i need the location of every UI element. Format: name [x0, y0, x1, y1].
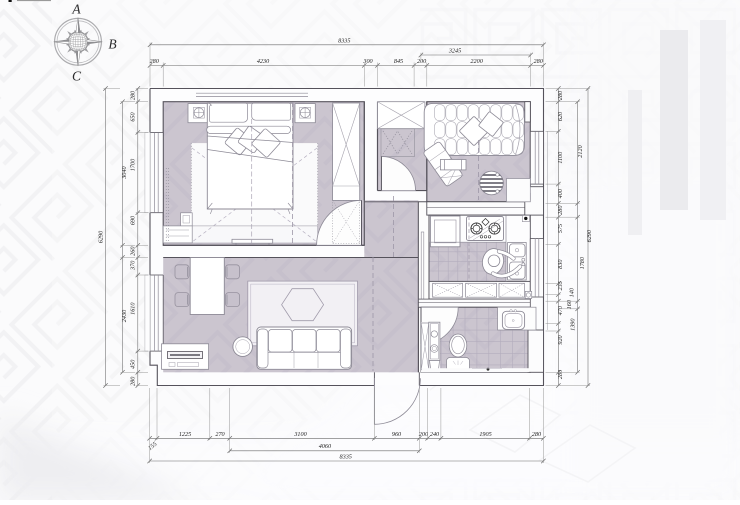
- svg-text:280: 280: [130, 376, 137, 386]
- svg-text:845: 845: [394, 58, 403, 65]
- svg-text:200: 200: [417, 58, 427, 65]
- svg-text:280: 280: [532, 431, 542, 438]
- svg-text:280: 280: [557, 90, 564, 100]
- svg-text:280: 280: [130, 90, 137, 100]
- svg-text:690: 690: [130, 215, 137, 225]
- svg-text:1225: 1225: [179, 431, 191, 438]
- svg-text:A: A: [71, 2, 81, 17]
- svg-text:140: 140: [569, 287, 576, 297]
- svg-text:450: 450: [130, 359, 137, 369]
- svg-text:650: 650: [130, 111, 137, 121]
- svg-text:1700: 1700: [130, 158, 137, 171]
- svg-text:8335: 8335: [338, 37, 350, 44]
- svg-text:C: C: [72, 69, 82, 84]
- svg-text:920: 920: [557, 334, 564, 344]
- svg-text:8335: 8335: [340, 454, 352, 461]
- svg-text:1390: 1390: [570, 318, 577, 331]
- svg-text:620: 620: [557, 111, 564, 121]
- svg-text:4060: 4060: [319, 443, 332, 450]
- svg-text:160: 160: [566, 299, 573, 309]
- svg-text:B: B: [108, 37, 116, 52]
- svg-text:280: 280: [557, 369, 564, 379]
- svg-text:280: 280: [557, 205, 564, 215]
- svg-text:300: 300: [362, 58, 373, 65]
- svg-text:1780: 1780: [579, 256, 586, 269]
- svg-text:235: 235: [557, 281, 564, 290]
- svg-text:1610: 1610: [130, 302, 137, 315]
- svg-text:280: 280: [534, 58, 544, 65]
- svg-text:3100: 3100: [293, 431, 307, 438]
- svg-text:2430: 2430: [121, 309, 128, 322]
- svg-text:1905: 1905: [479, 431, 491, 438]
- svg-text:260: 260: [130, 246, 137, 256]
- svg-text:3245: 3245: [448, 48, 461, 55]
- svg-text:6290: 6290: [586, 229, 593, 242]
- svg-text:3040: 3040: [121, 166, 128, 180]
- svg-text:6290: 6290: [98, 230, 105, 243]
- svg-text:280: 280: [150, 58, 160, 65]
- svg-text:2120: 2120: [577, 144, 584, 157]
- svg-text:2200: 2200: [470, 58, 483, 65]
- svg-text:240: 240: [430, 431, 440, 438]
- svg-text:370: 370: [130, 260, 137, 271]
- svg-text:270: 270: [215, 431, 225, 438]
- svg-text:575: 575: [557, 224, 564, 233]
- svg-text:4230: 4230: [257, 58, 270, 65]
- svg-text:1100: 1100: [557, 151, 564, 164]
- svg-text:830: 830: [557, 259, 564, 269]
- svg-text:400: 400: [557, 188, 564, 198]
- svg-text:470: 470: [557, 305, 564, 315]
- svg-text:960: 960: [392, 431, 402, 438]
